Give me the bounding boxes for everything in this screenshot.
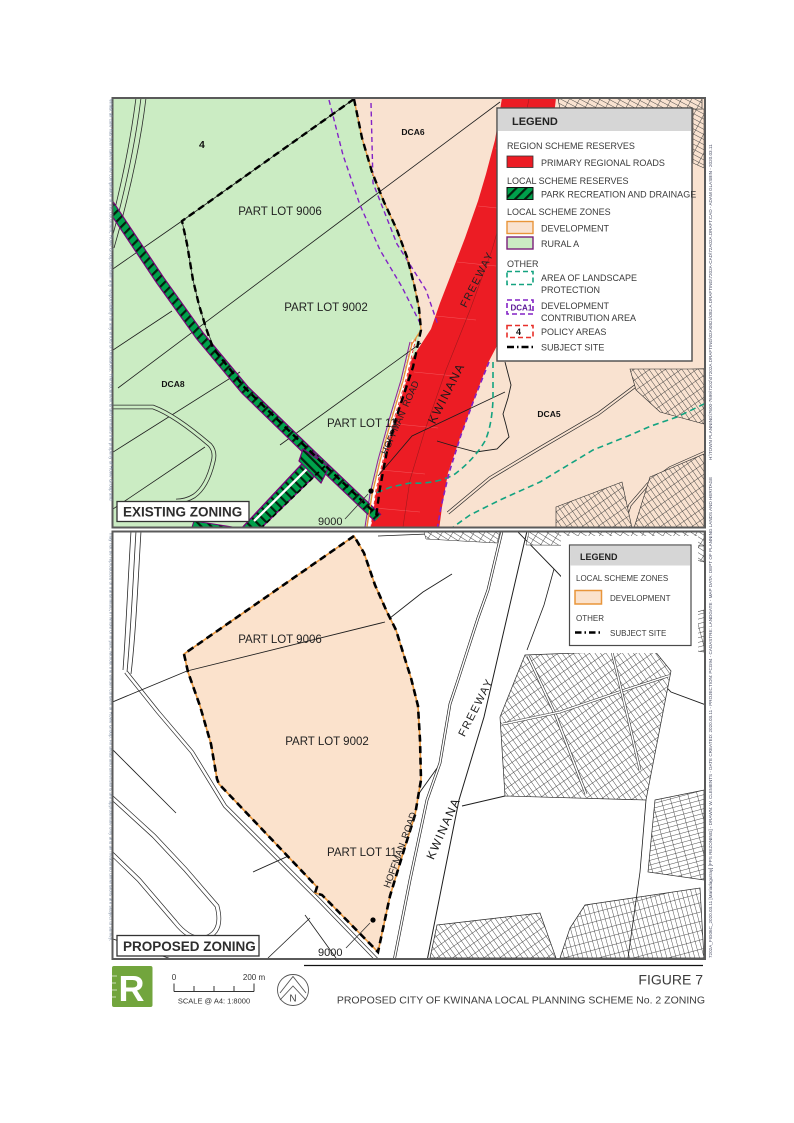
svg-text:PART LOT 9002: PART LOT 9002 [284, 302, 368, 314]
svg-text:RURAL A: RURAL A [541, 239, 579, 249]
svg-text:PROTECTION: PROTECTION [541, 285, 600, 295]
svg-text:DEVELOPMENT: DEVELOPMENT [541, 301, 610, 311]
svg-text:LOCAL SCHEME RESERVES: LOCAL SCHEME RESERVES [507, 176, 629, 186]
svg-text:PARK RECREATION AND DRAINAGE: PARK RECREATION AND DRAINAGE [541, 190, 696, 200]
svg-text:PART LOT 9006: PART LOT 9006 [238, 206, 322, 218]
svg-text:LOCAL SCHEME ZONES: LOCAL SCHEME ZONES [576, 574, 668, 583]
svg-text:DCA1: DCA1 [511, 304, 533, 313]
svg-text:DCA8: DCA8 [161, 379, 184, 389]
svg-text:7202A_FIG06C_2020.03.11 [Maria: 7202A_FIG06C_2020.03.11 [Mariadagutray] … [708, 477, 713, 958]
svg-text:POLICY AREAS: POLICY AREAS [541, 327, 606, 337]
svg-text:AREA OF LANDSCAPE: AREA OF LANDSCAPE [541, 273, 637, 283]
svg-text:4: 4 [516, 327, 521, 337]
svg-text:H:\TOWN PLANNING\7600-7699\720: H:\TOWN PLANNING\7600-7699\7202\07202A.D… [708, 144, 713, 460]
svg-text:OTHER: OTHER [576, 614, 604, 623]
svg-text:0: 0 [172, 973, 177, 982]
svg-text:PART LOT 11: PART LOT 11 [327, 847, 397, 859]
svg-text:DEVELOPMENT: DEVELOPMENT [610, 594, 671, 603]
svg-text:DCA6: DCA6 [401, 127, 424, 137]
svg-text:9000: 9000 [318, 516, 342, 528]
svg-text:DCA5: DCA5 [537, 409, 560, 419]
svg-text:LEGEND: LEGEND [580, 552, 618, 562]
svg-text:FIGURE 7: FIGURE 7 [638, 972, 703, 988]
svg-text:DEVELOPMENT: DEVELOPMENT [541, 224, 610, 234]
svg-text:PRIMARY REGIONAL ROADS: PRIMARY REGIONAL ROADS [541, 158, 665, 168]
svg-text:SUBJECT SITE: SUBJECT SITE [541, 343, 604, 353]
svg-text:REGION SCHEME RESERVES: REGION SCHEME RESERVES [507, 141, 635, 151]
svg-text:PART LOT 9006: PART LOT 9006 [238, 634, 322, 646]
svg-text:SCALE @ A4: 1:8000: SCALE @ A4: 1:8000 [178, 997, 250, 1006]
svg-text:PROPOSED CITY OF KWINANA LOCAL: PROPOSED CITY OF KWINANA LOCAL PLANNING … [337, 995, 705, 1007]
svg-text:PROPOSED ZONING: PROPOSED ZONING [123, 939, 256, 954]
svg-text:PART LOT 9002: PART LOT 9002 [285, 736, 369, 748]
svg-text:OTHER: OTHER [507, 259, 539, 269]
svg-text:200 m: 200 m [243, 973, 266, 982]
svg-text:R: R [119, 968, 145, 1009]
svg-text:4: 4 [199, 139, 205, 151]
svg-text:LEGEND: LEGEND [512, 116, 558, 128]
svg-text:SUBJECT SITE: SUBJECT SITE [610, 629, 666, 638]
svg-text:Whilst all care has been taken: Whilst all care has been taken in the co… [109, 99, 114, 501]
svg-text:LOCAL SCHEME ZONES: LOCAL SCHEME ZONES [507, 207, 611, 217]
svg-text:9000: 9000 [318, 947, 342, 959]
svg-text:EXISTING ZONING: EXISTING ZONING [123, 505, 242, 520]
svg-text:CONTRIBUTION AREA: CONTRIBUTION AREA [541, 313, 636, 323]
svg-text:PART LOT 11: PART LOT 11 [327, 418, 397, 430]
svg-text:N: N [289, 994, 296, 1005]
